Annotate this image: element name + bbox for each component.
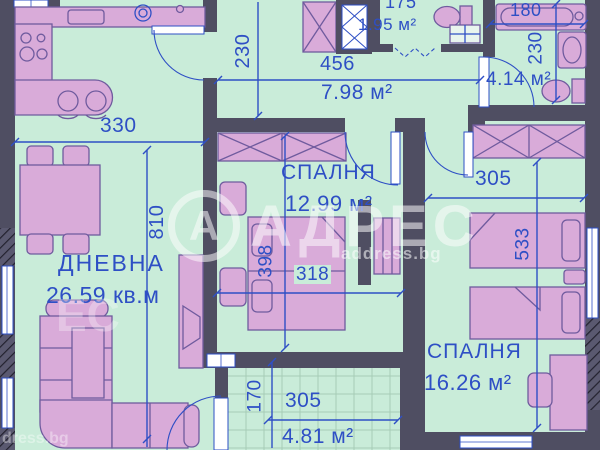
living-room-name: ДНЕВНА [58,252,165,275]
dining-chair [63,146,89,166]
dim-bedroom1-depth: 398 [257,244,276,277]
kitchen-sink [68,10,104,24]
dim-apartment-depth: 810 [147,205,167,240]
stove-burner [20,47,34,61]
decor-flower-icon [177,6,184,13]
dim-living-width: 330 [100,115,137,136]
dim-bedroom1-width: 318 [294,265,331,284]
dim-bedroom2-width: 305 [475,168,512,189]
nightstand [564,270,585,284]
stove-burner [37,34,45,42]
door-leaf [214,398,228,450]
sofa-armrest [184,405,199,447]
living-room-area: 26.59 кв.м [46,284,159,307]
dim-wc-width: 175 [385,0,417,11]
dim-bedroom2-depth: 533 [514,227,533,260]
wc-area: 1.95 м² [358,16,417,33]
bath-area: 4.14 м² [486,70,551,89]
door-leaf [152,26,204,34]
bar-stool [58,91,78,111]
dim-balcony-depth: 170 [246,379,265,412]
nightstand [220,182,246,215]
desk-chair [528,373,552,407]
dining-table [20,165,100,235]
floor-plan: ДНЕВНА 26.59 кв.м 330 810 230 456 7.98 м… [0,0,600,450]
dim-hall-width: 230 [233,34,253,69]
bedroom1-name: СПАЛНЯ [281,162,376,183]
bedroom2-name: СПАЛНЯ [427,341,522,362]
pillow [562,292,580,333]
desk [550,355,587,430]
bar-stool [86,91,106,111]
dining-chair [27,146,53,166]
coffee-table [72,328,104,398]
dim-bathtub-length: 180 [510,1,542,19]
bathtub-tap [575,12,583,20]
nightstand [220,268,246,306]
pillow [562,220,580,261]
door-leaf [464,132,473,177]
toilet-tank [572,79,585,103]
stove-burner [37,49,47,59]
dresser [374,218,400,274]
dim-hall-length: 456 [320,54,355,74]
bedroom2-area: 16.26 м² [424,372,512,394]
dim-bath-depth: 230 [527,31,546,64]
stove-burner [21,33,31,43]
pillow [252,280,272,312]
hall-area: 7.98 м² [321,82,393,103]
sofa-corner [40,400,112,448]
bedroom1-area: 12.99 м² [285,193,373,215]
door-leaf [391,132,400,184]
dining-chair [27,234,53,254]
balcony-area: 4.81 м² [282,426,354,447]
dim-balcony-width: 305 [285,390,322,411]
